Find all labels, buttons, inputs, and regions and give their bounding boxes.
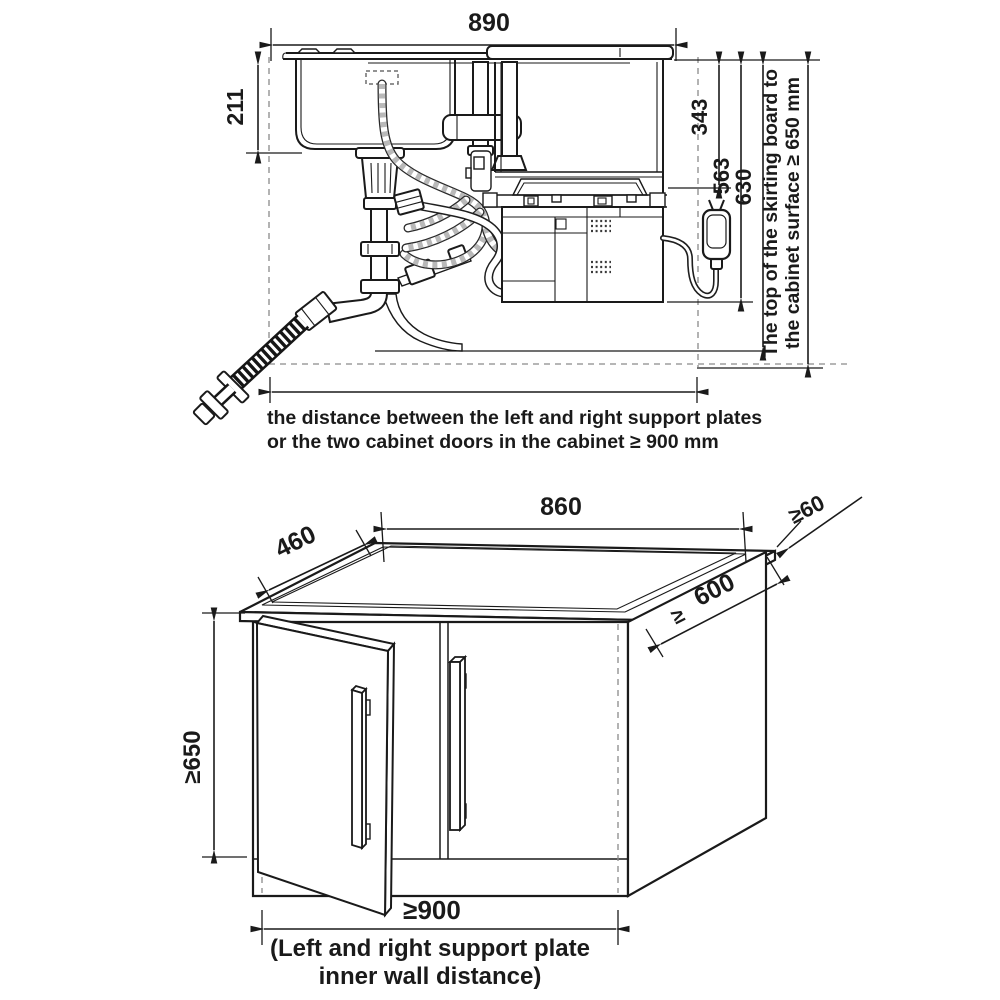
top-diagram: 890 (193, 9, 852, 453)
skirting-note-line2: the cabinet surface ≥ 650 mm (782, 77, 804, 349)
dim-650-label: ≥650 (179, 730, 206, 783)
dimension-650: ≥650 (179, 613, 247, 857)
dim-60-label: ≥60 (785, 490, 829, 529)
dimension-900-top: the distance between the left and right … (267, 377, 762, 453)
dim-860-label: 860 (540, 493, 582, 521)
installation-diagram-page: 890 (0, 0, 1000, 1000)
skirting-note-line1: The top of the skirting board to (760, 69, 782, 357)
dim-900-label: ≥900 (403, 895, 461, 925)
dim-630-label: 630 (731, 169, 756, 206)
sink-basin (296, 60, 455, 149)
inner-wall-caption-line2: inner wall distance) (319, 963, 542, 990)
support-plate-caption-line2: or the two cabinet doors in the cabinet … (267, 431, 719, 453)
inner-wall-caption-line1: (Left and right support plate (270, 935, 590, 962)
diagram-canvas: 890 (0, 0, 1000, 1000)
trap-outlet-pipe (383, 294, 462, 351)
dim-890-label: 890 (468, 9, 510, 37)
inlet-valve-box (466, 151, 491, 191)
dimension-211: 211 (222, 65, 258, 150)
dimension-skirting: The top of the skirting board to the cab… (760, 65, 808, 364)
drain-trap (295, 148, 462, 351)
mounting-clip-icon (333, 49, 355, 53)
dimension-60: ≥60 (777, 490, 862, 548)
machine-housing (502, 207, 663, 302)
dim-343-label: 343 (687, 99, 712, 136)
power-plug-icon (703, 200, 730, 269)
dimension-900-bottom: ≥900 (Left and right support plate inner… (262, 895, 618, 990)
dim-460-label: 460 (271, 520, 321, 563)
tub-tray (513, 179, 647, 195)
support-plate-caption-line1: the distance between the left and right … (267, 407, 762, 429)
bottom-diagram: 860 460 ≥60 ≥ 600 ≥650 (179, 490, 862, 990)
right-door-handle (450, 657, 466, 830)
dimension-630: 630 (731, 65, 763, 347)
dishwasher-lid (487, 46, 673, 59)
open-left-door (257, 616, 394, 915)
dim-211-label: 211 (222, 88, 248, 125)
mounting-clip-icon (298, 49, 320, 53)
